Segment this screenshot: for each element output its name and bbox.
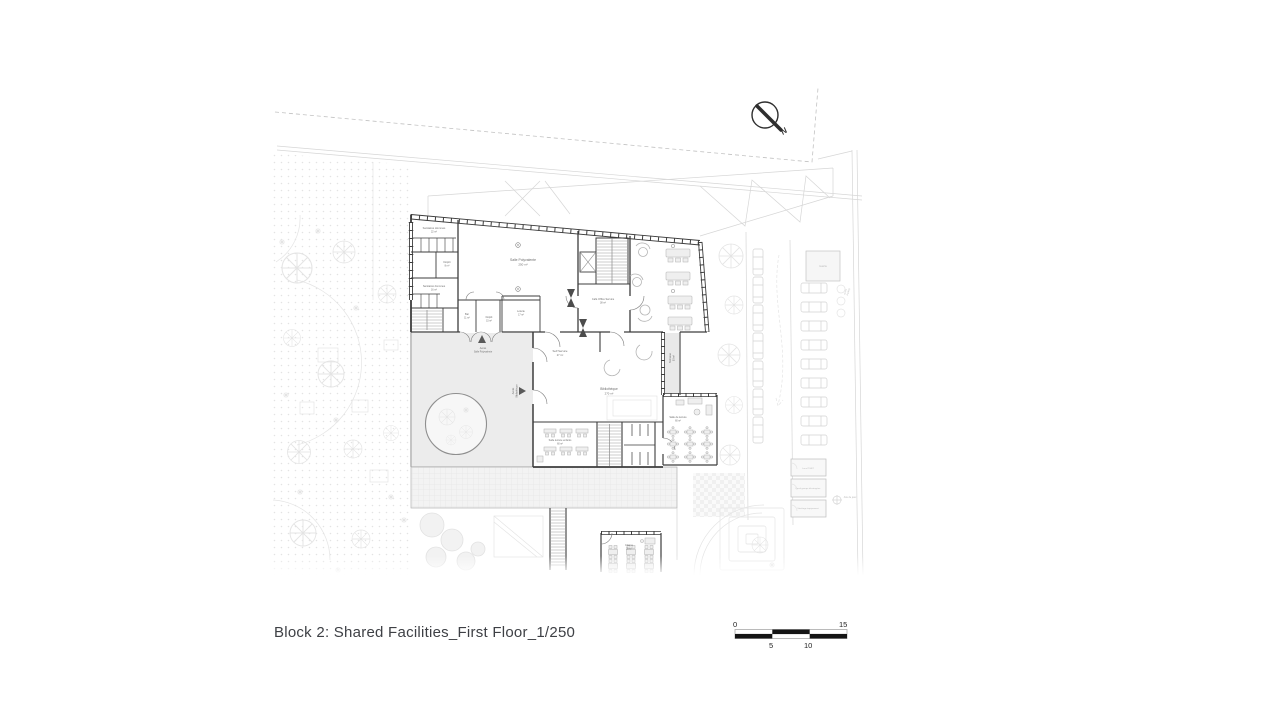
scale-segment-10-15: [810, 634, 847, 639]
access-label: Bibliothèque: [515, 384, 518, 398]
north-arrow: N: [752, 102, 789, 137]
room-label: Café Office Service: [592, 297, 615, 301]
room-area: 11 m²: [464, 316, 470, 319]
floor-plan-drawing: Sanitaires Hommes 22 m² Dépôt 8 m² Sanit…: [0, 0, 1280, 720]
room-area: 38 m²: [600, 302, 606, 305]
room-label: Salle Polyvalente: [510, 258, 536, 262]
room-label: Terrasse: [668, 352, 672, 363]
room-label: Dépôt: [444, 260, 451, 264]
room-area: 16 m²: [431, 289, 437, 292]
room-area: 50 m²: [673, 355, 676, 361]
scale-segment-5-10: [772, 630, 809, 635]
room-label: Bibliothèque: [600, 387, 618, 391]
access-label: Salle Polyvalente: [474, 350, 493, 353]
room-label: Sanitaires Hommes: [423, 226, 446, 230]
left-garden: [273, 153, 411, 575]
room-label: Bar: [465, 313, 469, 316]
room-label: Stockage équipement: [797, 507, 819, 510]
scale-label-5: 5: [769, 641, 773, 650]
room-area: 270 m²: [605, 391, 614, 395]
room-label: Local groupe électrogène: [796, 487, 821, 490]
room-label: Salle de lecture: [669, 416, 687, 419]
room-area: 250 m²: [518, 263, 527, 267]
room-label: Sanitaires Femmes: [423, 284, 446, 288]
scale-segment-0-5: [735, 634, 772, 639]
room-area: 22 m²: [431, 231, 437, 234]
scale-label-10: 10: [804, 641, 812, 650]
room-label: Salle lecture enfants: [549, 439, 572, 442]
scale-label-15: 15: [839, 620, 847, 629]
room-area: 35 m²: [626, 548, 632, 551]
scale-label-0: 0: [733, 620, 737, 629]
room-area: 27 m²: [557, 354, 564, 357]
sheet-caption: Block 2: Shared Facilities_First Floor_1…: [274, 624, 575, 641]
plan-fade: [260, 556, 890, 576]
room-area: 60 m²: [557, 442, 563, 445]
scale-bar: 0 15 5 10: [733, 620, 847, 650]
plan-fade-solid: [260, 575, 890, 587]
room-label: Guérite: [819, 265, 828, 268]
room-label: Classe: [625, 543, 633, 547]
room-area: 60 m²: [675, 419, 681, 422]
drawing-sheet: Sanitaires Hommes 22 m² Dépôt 8 m² Sanit…: [0, 0, 1280, 720]
ramp: [494, 516, 543, 557]
room-label: Self Service: [553, 349, 568, 353]
room-area: 15 m²: [486, 319, 492, 322]
north-label: N: [779, 126, 789, 137]
room-label: Dépôt: [486, 316, 493, 319]
room-label: Aire de jeux: [844, 496, 857, 499]
room-label: Local TGBT: [802, 468, 814, 470]
room-label: Loterie: [517, 310, 525, 313]
room-area: 17 m²: [518, 313, 524, 316]
room-area: 8 m²: [445, 265, 450, 268]
reading-room: [663, 394, 717, 466]
